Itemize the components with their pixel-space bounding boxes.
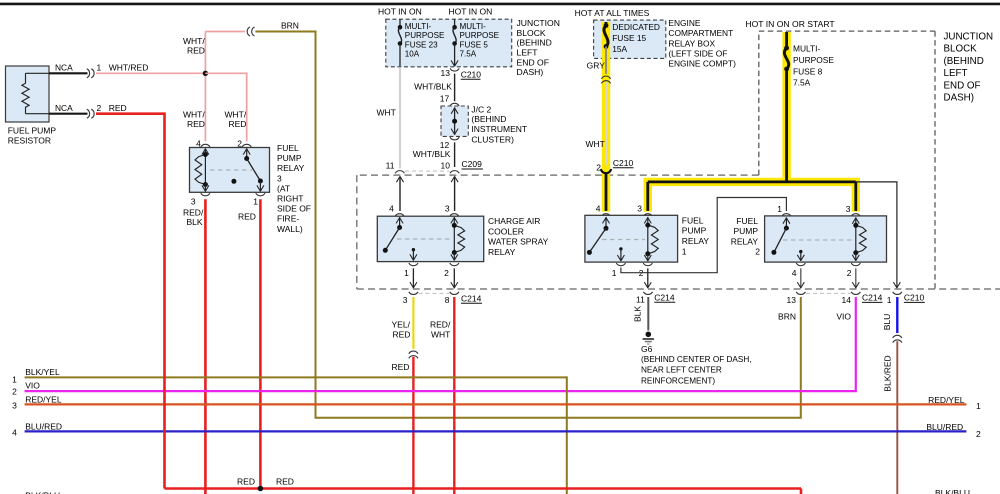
svg-text:PUMP: PUMP (733, 226, 758, 236)
svg-text:RELAY BOX: RELAY BOX (668, 38, 715, 48)
svg-text:MULTI-: MULTI- (405, 22, 432, 31)
svg-text:3: 3 (403, 295, 408, 305)
svg-text:(AT: (AT (277, 183, 290, 193)
svg-text:14: 14 (842, 295, 852, 305)
svg-text:4: 4 (196, 138, 201, 148)
svg-text:BRN: BRN (778, 312, 796, 322)
svg-text:11: 11 (636, 294, 645, 304)
svg-text:HOT IN ON: HOT IN ON (378, 7, 422, 17)
svg-text:FUSE 15: FUSE 15 (612, 33, 646, 43)
svg-text:3: 3 (191, 197, 196, 207)
svg-text:WHT/: WHT/ (183, 110, 205, 120)
svg-text:4: 4 (792, 268, 797, 278)
svg-text:COMPARTMENT: COMPARTMENT (668, 28, 733, 38)
svg-text:RED/: RED/ (430, 320, 451, 330)
svg-text:BRN: BRN (281, 21, 299, 31)
svg-text:RIGHT: RIGHT (277, 194, 303, 204)
svg-text:2: 2 (755, 247, 760, 257)
svg-text:FUEL: FUEL (736, 216, 758, 226)
svg-text:RED: RED (109, 103, 127, 113)
svg-text:MULTI-: MULTI- (460, 22, 487, 31)
svg-text:15A: 15A (612, 44, 627, 54)
svg-text:LEFT: LEFT (517, 47, 539, 57)
svg-text:C214: C214 (654, 293, 675, 303)
svg-text:1: 1 (12, 374, 17, 384)
svg-text:PURPOSE: PURPOSE (460, 31, 500, 40)
svg-text:VIO: VIO (836, 312, 851, 322)
svg-text:1: 1 (612, 268, 617, 278)
svg-text:FUEL: FUEL (682, 215, 704, 225)
svg-text:1: 1 (976, 401, 981, 411)
svg-text:(BEHIND: (BEHIND (944, 56, 984, 67)
svg-text:1: 1 (682, 246, 687, 256)
svg-text:3: 3 (846, 204, 851, 214)
svg-text:PURPOSE: PURPOSE (405, 31, 445, 40)
svg-text:WHT/RED: WHT/RED (109, 63, 149, 73)
svg-text:7.5A: 7.5A (793, 78, 811, 88)
svg-text:RED: RED (238, 212, 256, 222)
svg-text:4: 4 (596, 203, 601, 213)
svg-text:DEDICATED: DEDICATED (612, 22, 660, 32)
svg-text:3: 3 (637, 203, 642, 213)
svg-text:(BEHIND CENTER OF DASH,: (BEHIND CENTER OF DASH, (641, 355, 752, 364)
svg-text:2: 2 (847, 268, 852, 278)
svg-text:13: 13 (441, 68, 451, 78)
svg-text:BLOCK: BLOCK (944, 44, 978, 55)
svg-text:FUEL: FUEL (277, 143, 299, 153)
svg-text:13: 13 (787, 295, 797, 305)
svg-text:ENGINE COMPT): ENGINE COMPT) (668, 59, 736, 69)
svg-text:PUMP: PUMP (277, 153, 302, 163)
svg-text:2: 2 (237, 138, 242, 148)
svg-text:RED: RED (393, 330, 411, 340)
svg-text:WATER SPRAY: WATER SPRAY (488, 237, 549, 247)
svg-text:C210: C210 (461, 70, 482, 80)
svg-text:2: 2 (12, 386, 17, 396)
svg-text:PUMP: PUMP (682, 226, 707, 236)
svg-text:11: 11 (386, 161, 395, 171)
svg-text:END OF: END OF (517, 57, 549, 67)
svg-text:WHT/BLK: WHT/BLK (413, 149, 451, 159)
svg-text:8: 8 (445, 295, 450, 305)
svg-text:RESISTOR: RESISTOR (8, 136, 51, 146)
svg-text:4: 4 (12, 427, 17, 437)
svg-text:BLK/BLU: BLK/BLU (935, 488, 970, 494)
svg-text:RED: RED (392, 362, 410, 372)
svg-text:10: 10 (441, 161, 451, 171)
svg-text:RELAY: RELAY (277, 163, 305, 173)
svg-text:BLK/RED: BLK/RED (883, 355, 893, 391)
svg-text:WALL): WALL) (277, 224, 303, 234)
svg-text:CLUSTER): CLUSTER) (471, 135, 514, 145)
svg-text:1: 1 (97, 63, 102, 73)
svg-text:(LEFT SIDE OF: (LEFT SIDE OF (668, 48, 727, 58)
svg-text:ENGINE: ENGINE (668, 18, 701, 28)
svg-text:RELAY: RELAY (731, 236, 759, 246)
svg-text:RED: RED (187, 119, 205, 129)
svg-text:G6: G6 (641, 344, 653, 354)
svg-text:REINFORCEMENT): REINFORCEMENT) (641, 376, 715, 385)
svg-text:RED/YEL: RED/YEL (25, 394, 62, 404)
svg-text:MULTI-: MULTI- (793, 44, 821, 54)
svg-text:SIDE OF: SIDE OF (277, 204, 311, 214)
svg-text:BLOCK: BLOCK (517, 28, 546, 38)
svg-text:END OF: END OF (944, 80, 981, 91)
svg-text:JUNCTION: JUNCTION (944, 32, 994, 43)
svg-text:YEL/: YEL/ (392, 320, 411, 330)
svg-text:WHT/: WHT/ (183, 36, 205, 46)
svg-text:WHT: WHT (586, 139, 605, 149)
svg-text:JUNCTION: JUNCTION (517, 18, 560, 28)
svg-text:C209: C209 (462, 159, 483, 169)
svg-text:C210: C210 (904, 293, 925, 303)
svg-text:FUSE 23: FUSE 23 (405, 40, 438, 49)
svg-text:RED: RED (237, 477, 255, 487)
svg-text:10A: 10A (405, 50, 420, 59)
svg-text:BLK/YEL: BLK/YEL (25, 367, 60, 377)
svg-text:RELAY: RELAY (682, 236, 710, 246)
svg-text:WHT: WHT (431, 330, 450, 340)
svg-text:17: 17 (440, 94, 450, 104)
svg-text:C214: C214 (862, 293, 883, 303)
svg-text:BLU/RED: BLU/RED (926, 422, 963, 432)
svg-text:WHT/BLK: WHT/BLK (414, 82, 452, 92)
svg-text:3: 3 (277, 173, 282, 183)
svg-text:NCA: NCA (55, 63, 73, 73)
svg-text:HOT IN ON OR START: HOT IN ON OR START (745, 19, 835, 29)
svg-text:RED/YEL: RED/YEL (928, 395, 965, 405)
svg-text:2: 2 (444, 268, 449, 278)
svg-text:BLK: BLK (632, 306, 642, 322)
svg-text:2: 2 (97, 103, 102, 113)
svg-text:C214: C214 (461, 294, 482, 304)
svg-text:FUEL PUMP: FUEL PUMP (8, 126, 57, 136)
svg-text:CHARGE AIR: CHARGE AIR (488, 216, 540, 226)
svg-text:(BEHIND: (BEHIND (471, 114, 506, 124)
svg-text:FUSE 5: FUSE 5 (460, 40, 489, 49)
svg-text:3: 3 (445, 203, 450, 213)
svg-text:DASH): DASH) (517, 67, 544, 77)
svg-text:RED/: RED/ (183, 208, 204, 218)
svg-text:FIRE-: FIRE- (277, 214, 299, 224)
svg-text:RED: RED (229, 119, 247, 129)
svg-text:C210: C210 (613, 158, 634, 168)
svg-text:COOLER: COOLER (488, 226, 524, 236)
svg-text:PURPOSE: PURPOSE (793, 55, 834, 65)
svg-text:HOT IN ON: HOT IN ON (449, 7, 493, 17)
svg-text:1: 1 (887, 295, 892, 305)
svg-text:VIO: VIO (25, 381, 40, 391)
svg-text:1: 1 (404, 268, 409, 278)
svg-text:RED: RED (187, 46, 205, 56)
svg-text:1: 1 (777, 204, 782, 214)
svg-text:RED: RED (276, 477, 294, 487)
svg-text:FUSE 8: FUSE 8 (793, 66, 823, 76)
svg-text:7.5A: 7.5A (460, 50, 477, 59)
svg-text:3: 3 (12, 400, 17, 410)
svg-text:WHT: WHT (377, 108, 396, 118)
svg-text:WHT/: WHT/ (225, 110, 247, 120)
svg-text:NCA: NCA (55, 103, 73, 113)
svg-text:INSTRUMENT: INSTRUMENT (471, 124, 527, 134)
svg-text:NEAR LEFT CENTER: NEAR LEFT CENTER (641, 366, 722, 375)
svg-text:BLU: BLU (882, 314, 892, 331)
svg-text:4: 4 (389, 203, 394, 213)
svg-text:(BEHIND: (BEHIND (517, 38, 552, 48)
svg-text:LEFT: LEFT (944, 68, 968, 79)
svg-text:BLU/RED: BLU/RED (25, 421, 62, 431)
svg-text:BLK/BLU: BLK/BLU (25, 490, 60, 494)
svg-text:RELAY: RELAY (488, 247, 516, 257)
svg-text:1: 1 (253, 197, 258, 207)
svg-text:BLK: BLK (187, 217, 203, 227)
svg-text:GRY: GRY (587, 61, 606, 71)
svg-text:DASH): DASH) (944, 93, 974, 104)
svg-text:2: 2 (976, 429, 981, 439)
svg-text:HOT AT ALL TIMES: HOT AT ALL TIMES (575, 8, 650, 18)
svg-text:J/C 2: J/C 2 (471, 105, 491, 115)
